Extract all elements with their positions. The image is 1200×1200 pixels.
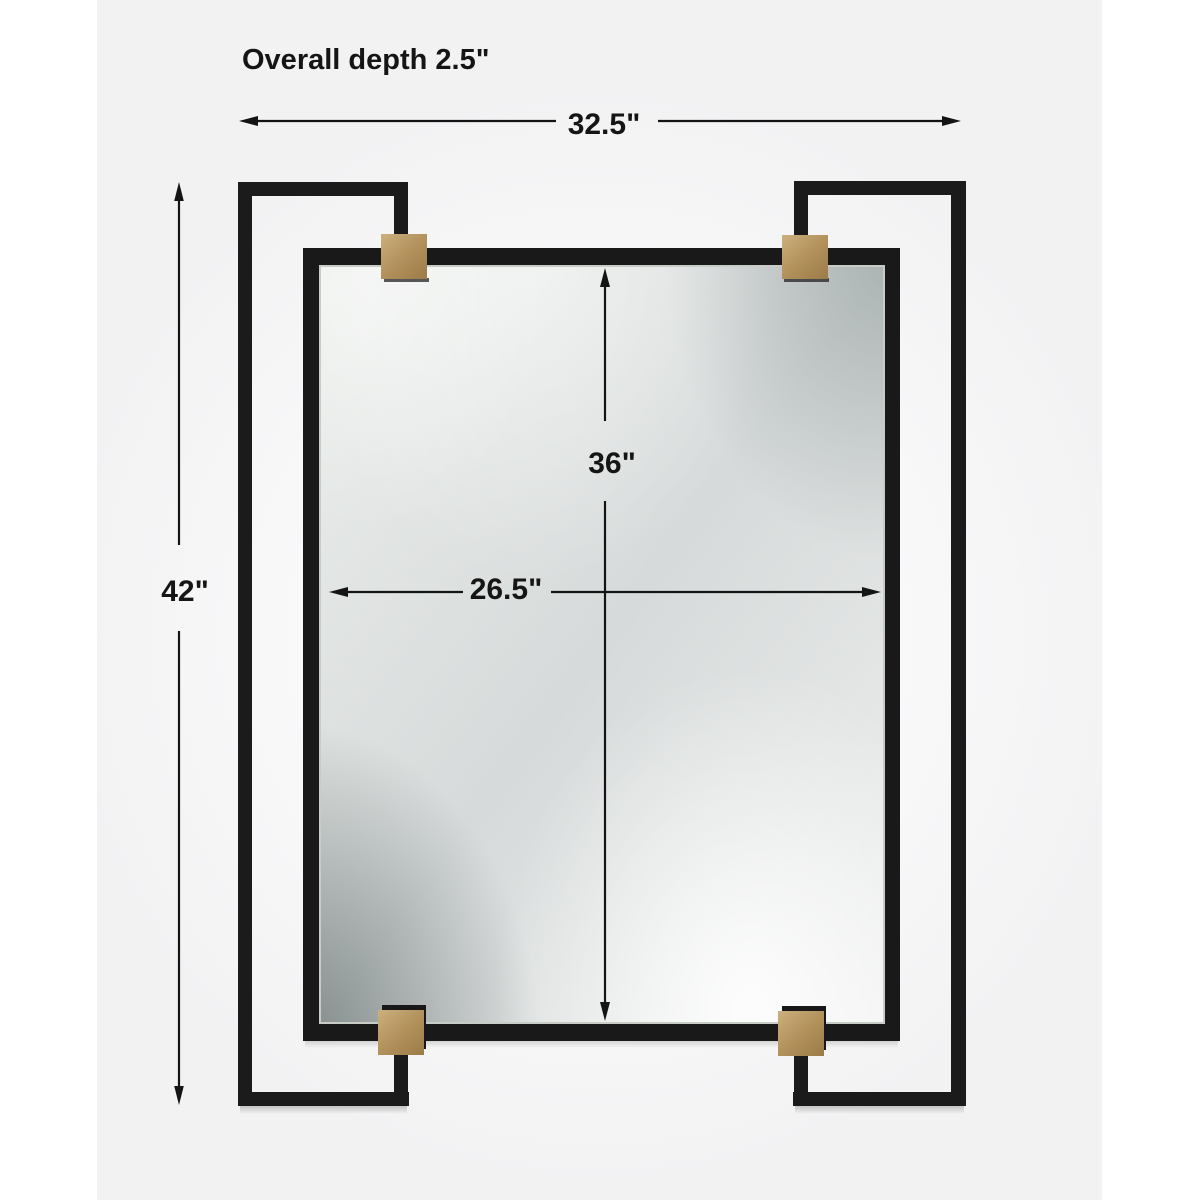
svg-text:36": 36" xyxy=(588,447,636,480)
svg-text:26.5": 26.5" xyxy=(470,573,543,606)
svg-text:Overall depth 2.5": Overall depth 2.5" xyxy=(242,44,489,76)
svg-text:42": 42" xyxy=(161,575,209,608)
svg-text:32.5": 32.5" xyxy=(568,108,641,141)
